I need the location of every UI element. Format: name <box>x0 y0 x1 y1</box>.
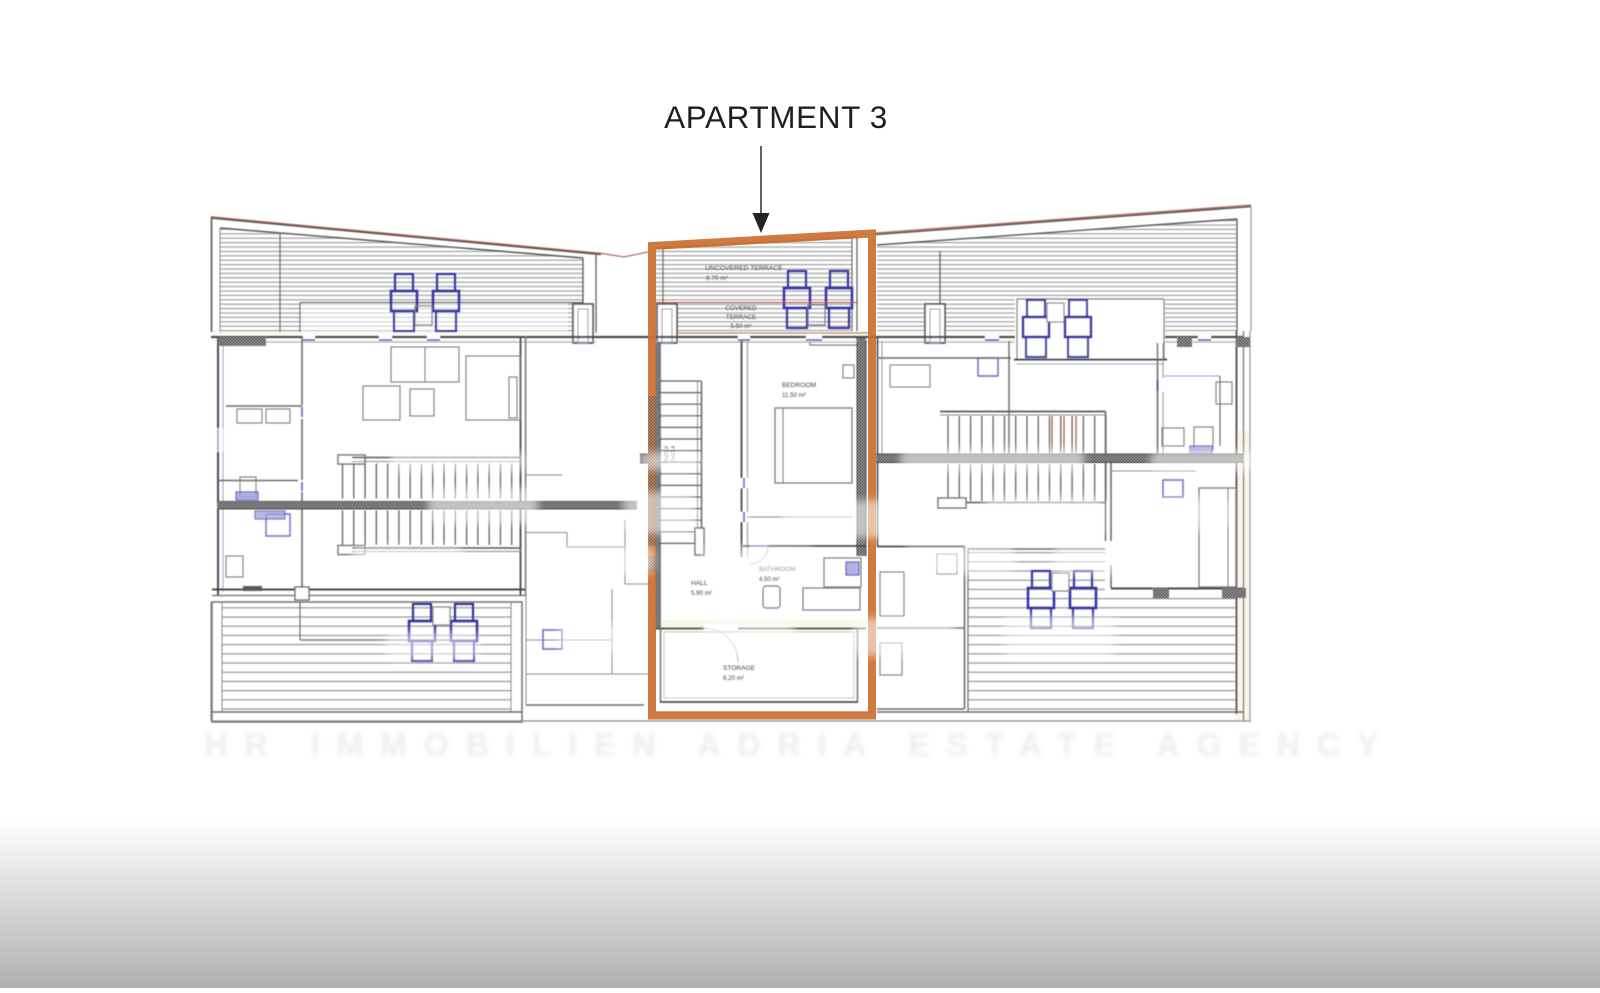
svg-text:HALL: HALL <box>691 580 708 587</box>
svg-text:TERRACE: TERRACE <box>726 314 757 321</box>
svg-text:5.90 m²: 5.90 m² <box>691 590 712 597</box>
svg-text:8.70 m²: 8.70 m² <box>706 275 728 282</box>
svg-text:STORAGE: STORAGE <box>723 665 756 672</box>
svg-text:8.20 m²: 8.20 m² <box>723 675 744 682</box>
svg-text:4.50 m²: 4.50 m² <box>759 577 779 583</box>
svg-text:BEDROOM: BEDROOM <box>782 382 816 389</box>
svg-text:UNCOVERED TERRACE: UNCOVERED TERRACE <box>705 265 783 272</box>
svg-text:5.50 m²: 5.50 m² <box>731 323 752 330</box>
svg-text:APARTMENT 3: APARTMENT 3 <box>664 99 888 135</box>
svg-text:11.50 m²: 11.50 m² <box>782 392 806 399</box>
svg-text:COVERED: COVERED <box>725 305 757 312</box>
svg-text:HR IMMOBILIEN ADRIA ESTATE AGE: HR IMMOBILIEN ADRIA ESTATE AGENCY <box>205 727 1396 763</box>
